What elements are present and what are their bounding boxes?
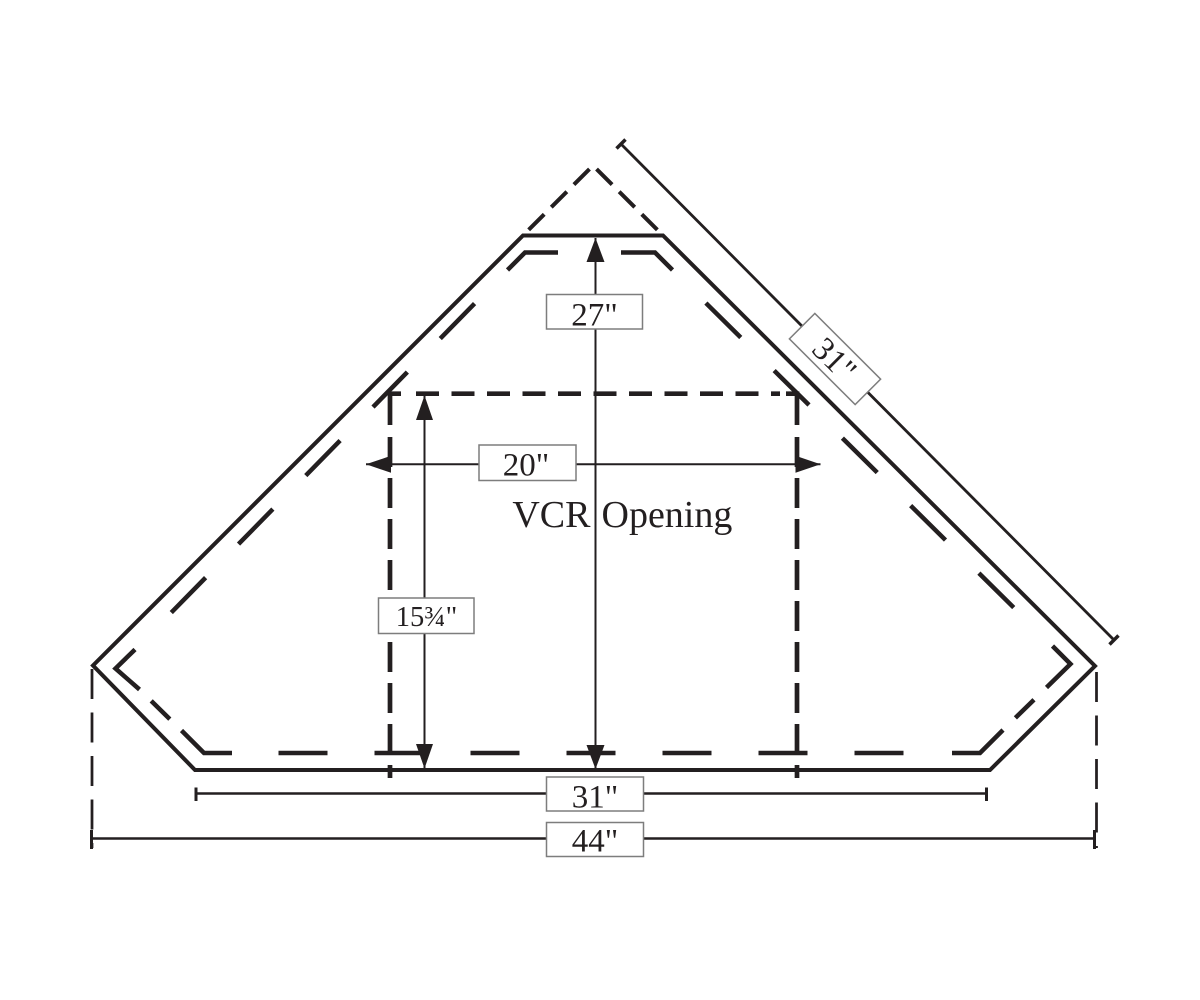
svg-text:20": 20" [503, 448, 549, 484]
svg-text:44": 44" [572, 824, 618, 860]
svg-text:27": 27" [571, 298, 617, 334]
svg-text:Opening: Opening [602, 494, 733, 536]
svg-text:31": 31" [572, 780, 618, 816]
svg-text:VCR: VCR [512, 494, 591, 536]
svg-text:15¾": 15¾" [396, 602, 458, 633]
